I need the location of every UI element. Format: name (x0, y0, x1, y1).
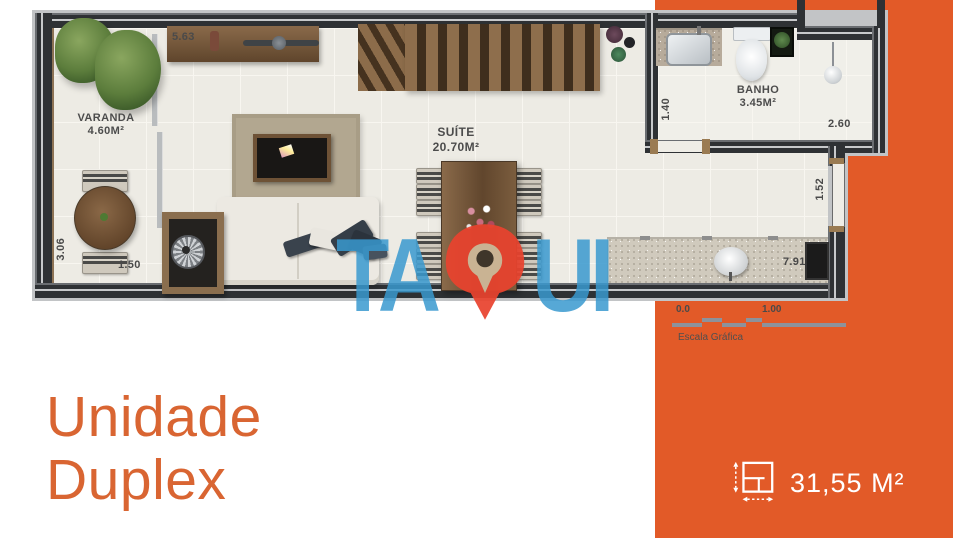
floorplan-poster: VARANDA 4.60M² SUÍTE 20.70M² BANHO 3.45M… (0, 0, 953, 538)
room-name: BANHO (712, 84, 804, 97)
counter-fixture (702, 236, 712, 240)
window-jamb-top (829, 158, 844, 164)
taqui-watermark: TA UI (336, 222, 636, 322)
scale-ticks: 0.0 1.00 (672, 304, 852, 318)
scale-segment (746, 318, 762, 322)
scale-segment (702, 318, 722, 322)
toilet-bowl (736, 39, 767, 81)
sink-tap (729, 272, 732, 281)
window-jamb-bottom (829, 226, 844, 232)
table-centerpiece (100, 213, 108, 221)
scale-tick-start: 0.0 (676, 304, 690, 315)
graphic-scale: 0.0 1.00 Escala Gráfica (672, 304, 852, 345)
ceiling-fan-hub (272, 36, 286, 50)
scale-bar-line (672, 318, 852, 327)
suite-label: SUÍTE 20.70M² (406, 125, 506, 155)
wall-stub-shaft-left (797, 0, 805, 28)
watermark-text-left: TA (336, 236, 436, 316)
banho-label: BANHO 3.45M² (712, 84, 804, 110)
dim-varanda-width: 1.50 (118, 259, 141, 271)
page-title: Unidade Duplex (46, 386, 262, 512)
dining-chair (514, 184, 542, 200)
wall-right-lower (828, 226, 845, 298)
staircase-winder (358, 24, 405, 91)
door-jamb-right (702, 139, 710, 154)
dining-chair (416, 168, 444, 184)
wall-bathroom-right (872, 26, 885, 153)
dining-chair (514, 200, 542, 216)
side-window-opening (832, 163, 845, 227)
varanda-label: VARANDA 4.60M² (60, 112, 152, 138)
shelf-decor (210, 31, 219, 51)
counter-fixture (640, 236, 650, 240)
shower-head (824, 66, 842, 84)
room-area: 4.60M² (60, 125, 152, 138)
decor-pot (624, 37, 635, 48)
room-area: 20.70M² (406, 140, 506, 155)
scale-caption: Escala Gráfica (678, 332, 743, 343)
dimension-square-icon (731, 460, 777, 506)
room-area: 3.45M² (712, 97, 804, 110)
area-badge: 31,55 M² (731, 460, 905, 506)
bathroom-door-opening (658, 141, 702, 152)
wall-stub-shaft-right (877, 0, 885, 28)
staircase (405, 24, 600, 91)
counter-fixture (768, 236, 778, 240)
door-jamb-left (650, 139, 658, 154)
scale-tick-one: 1.00 (762, 304, 781, 315)
dim-varanda-depth: 3.06 (55, 238, 67, 261)
wall-left (35, 13, 52, 298)
decor-pot (606, 26, 623, 43)
scale-segment (762, 323, 846, 327)
area-value: 31,55 M² (790, 468, 905, 499)
dining-chair (416, 200, 444, 216)
map-pin-icon (442, 222, 528, 322)
dining-chair (416, 184, 444, 200)
scale-segment (672, 323, 702, 327)
dim-banho-depth: 1.40 (660, 98, 672, 121)
decor-pot (611, 47, 626, 62)
tv-rack (253, 134, 331, 182)
room-name: SUÍTE (406, 125, 506, 140)
bathroom-plant (774, 32, 790, 48)
bathroom-sink (666, 33, 712, 66)
dim-shelf-width: 5.63 (172, 31, 195, 43)
bathroom-faucet (697, 26, 701, 35)
watermark-text-right: UI (532, 236, 609, 316)
room-name: VARANDA (60, 112, 152, 125)
dim-counter-length: 7.91 (783, 256, 806, 268)
cooktop (805, 242, 829, 280)
decor-fan-hub (182, 246, 190, 254)
title-line-1: Unidade (46, 386, 262, 449)
dim-banho-width: 2.60 (828, 118, 851, 130)
scale-segment (722, 323, 746, 327)
dim-side-opening: 1.52 (814, 178, 826, 201)
dining-chair (514, 168, 542, 184)
title-line-2: Duplex (46, 449, 262, 512)
